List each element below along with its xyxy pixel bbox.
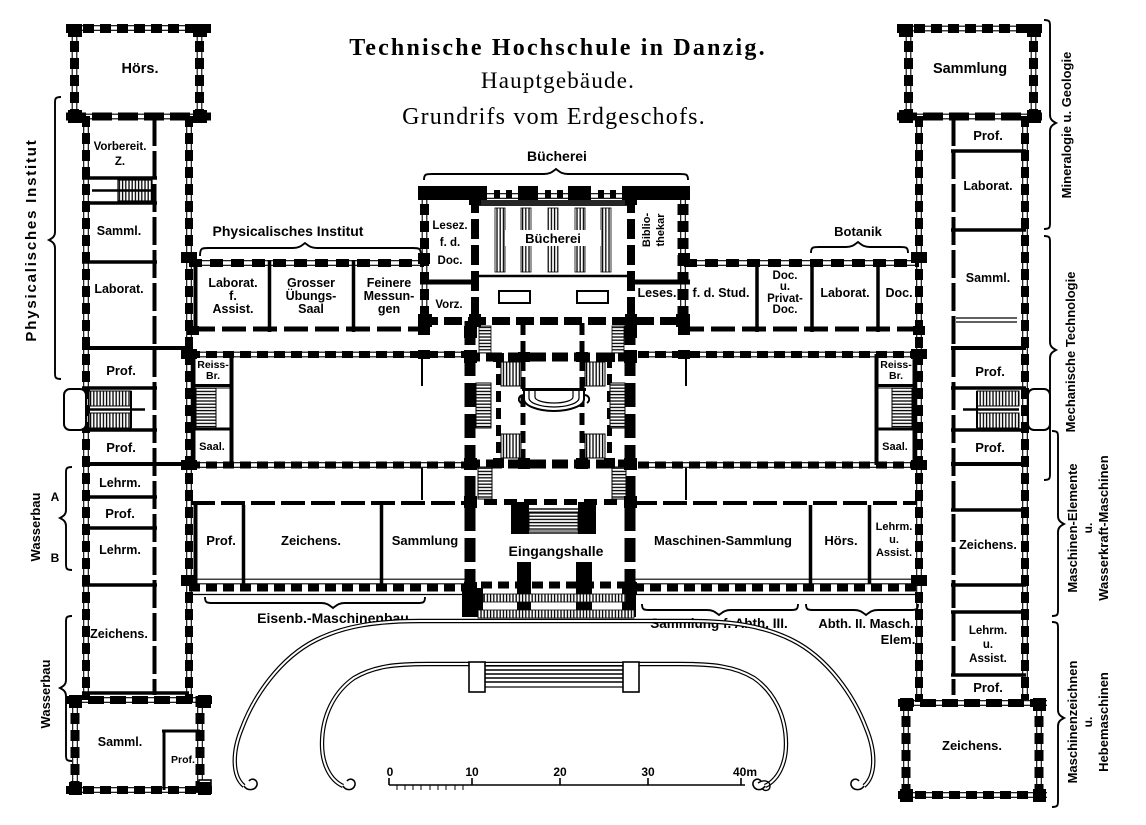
svg-text:Biblio-: Biblio-	[641, 213, 653, 248]
svg-text:Feinere: Feinere	[367, 276, 412, 290]
svg-text:thekar: thekar	[655, 213, 667, 247]
svg-text:Technische Hochschule in Danzi: Technische Hochschule in Danzig.	[349, 35, 767, 61]
svg-text:Sammlung: Sammlung	[933, 61, 1007, 77]
svg-text:Grosser: Grosser	[287, 276, 335, 290]
svg-text:Botanik: Botanik	[834, 224, 882, 239]
svg-text:Saal.: Saal.	[882, 441, 908, 453]
svg-text:Prof.: Prof.	[106, 440, 136, 455]
svg-text:Assist.: Assist.	[969, 653, 1007, 665]
svg-text:Samml.: Samml.	[97, 224, 141, 238]
svg-text:Grundrifs vom Erdgeschofs.: Grundrifs vom Erdgeschofs.	[402, 104, 706, 130]
svg-text:40m: 40m	[733, 765, 757, 779]
svg-text:Saal.: Saal.	[199, 441, 225, 453]
svg-text:Maschinen-Sammlung: Maschinen-Sammlung	[654, 533, 792, 548]
svg-text:f.: f.	[229, 289, 237, 303]
svg-text:Prof.: Prof.	[171, 754, 195, 766]
svg-text:B: B	[51, 551, 60, 565]
svg-text:Prof.: Prof.	[973, 128, 1003, 143]
svg-text:Messun-: Messun-	[364, 289, 415, 303]
svg-text:Zeichens.: Zeichens.	[90, 627, 148, 641]
svg-text:A: A	[51, 490, 60, 504]
svg-text:Eingangshalle: Eingangshalle	[509, 543, 604, 559]
svg-text:Leses.: Leses.	[638, 286, 677, 300]
svg-text:Hebemaschinen: Hebemaschinen	[1096, 672, 1111, 772]
svg-text:Lehrm.: Lehrm.	[99, 543, 141, 557]
svg-text:Lehrm.: Lehrm.	[876, 521, 913, 533]
svg-text:Prof.: Prof.	[973, 680, 1003, 695]
svg-text:u.: u.	[983, 639, 993, 651]
svg-text:10: 10	[465, 765, 479, 779]
svg-text:Laborat.: Laborat.	[94, 282, 143, 296]
svg-text:Lehrm.: Lehrm.	[99, 476, 141, 490]
svg-text:Prof.: Prof.	[975, 440, 1005, 455]
svg-text:f. d.: f. d.	[440, 237, 460, 249]
svg-text:Zeichens.: Zeichens.	[281, 533, 341, 548]
svg-text:Sammlung: Sammlung	[392, 533, 459, 548]
svg-text:Saal: Saal	[298, 302, 324, 316]
svg-text:Doc.: Doc.	[438, 255, 463, 267]
svg-text:u.: u.	[1081, 717, 1095, 728]
svg-text:Doc.: Doc.	[773, 304, 798, 316]
svg-text:Physicalisches Institut: Physicalisches Institut	[23, 138, 40, 341]
svg-text:Elem.: Elem.	[881, 632, 916, 647]
svg-text:Zeichens.: Zeichens.	[959, 538, 1017, 552]
svg-text:Abth. II. Masch.: Abth. II. Masch.	[818, 616, 913, 631]
svg-text:Prof.: Prof.	[105, 506, 135, 521]
svg-text:Prof.: Prof.	[106, 363, 136, 378]
svg-text:Bücherei: Bücherei	[527, 148, 587, 164]
svg-text:f. d. Stud.: f. d. Stud.	[693, 286, 750, 300]
svg-text:Vorbereit.: Vorbereit.	[94, 141, 147, 153]
svg-text:Prof.: Prof.	[975, 364, 1005, 379]
svg-text:Br.: Br.	[206, 370, 220, 382]
svg-text:Samml.: Samml.	[98, 735, 142, 749]
svg-text:Samml.: Samml.	[966, 271, 1010, 285]
svg-text:Hauptgebäude.: Hauptgebäude.	[481, 68, 635, 93]
svg-text:Übungs-: Übungs-	[286, 288, 337, 303]
svg-text:Assist.: Assist.	[213, 302, 254, 316]
svg-text:u.: u.	[889, 534, 899, 546]
svg-text:Mineralogie u. Geologie: Mineralogie u. Geologie	[1059, 52, 1074, 199]
svg-text:Z.: Z.	[115, 156, 125, 168]
svg-text:Lesez.: Lesez.	[432, 220, 467, 232]
svg-text:u.: u.	[1081, 523, 1095, 534]
svg-text:Wasserbau: Wasserbau	[28, 493, 43, 562]
svg-text:Wasserbau: Wasserbau	[38, 660, 53, 729]
svg-text:Vorz.: Vorz.	[435, 299, 462, 311]
svg-text:Wasserkraft-Maschinen: Wasserkraft-Maschinen	[1096, 455, 1111, 601]
svg-text:Lehrm.: Lehrm.	[969, 625, 1007, 637]
svg-text:Maschinen-Elemente: Maschinen-Elemente	[1065, 463, 1080, 592]
svg-text:u.: u.	[780, 281, 790, 293]
svg-text:Br.: Br.	[889, 370, 903, 382]
svg-text:Laborat.: Laborat.	[208, 276, 257, 290]
svg-text:Physicalisches Institut: Physicalisches Institut	[213, 223, 364, 239]
svg-text:Assist.: Assist.	[876, 547, 912, 559]
svg-text:Bücherei: Bücherei	[525, 231, 581, 246]
svg-text:Laborat.: Laborat.	[963, 179, 1012, 193]
svg-text:30: 30	[641, 765, 655, 779]
svg-text:0: 0	[387, 765, 394, 779]
svg-text:Hörs.: Hörs.	[121, 61, 158, 77]
svg-text:Mechanische Technologie: Mechanische Technologie	[1063, 272, 1078, 433]
svg-text:Doc.: Doc.	[885, 286, 912, 300]
svg-text:Laborat.: Laborat.	[820, 286, 869, 300]
svg-text:Hörs.: Hörs.	[824, 533, 857, 548]
svg-text:Zeichens.: Zeichens.	[942, 738, 1002, 753]
svg-text:Prof.: Prof.	[206, 533, 236, 548]
svg-text:Maschinenzeichnen: Maschinenzeichnen	[1065, 661, 1080, 784]
svg-text:gen: gen	[378, 302, 400, 316]
svg-text:20: 20	[553, 765, 567, 779]
